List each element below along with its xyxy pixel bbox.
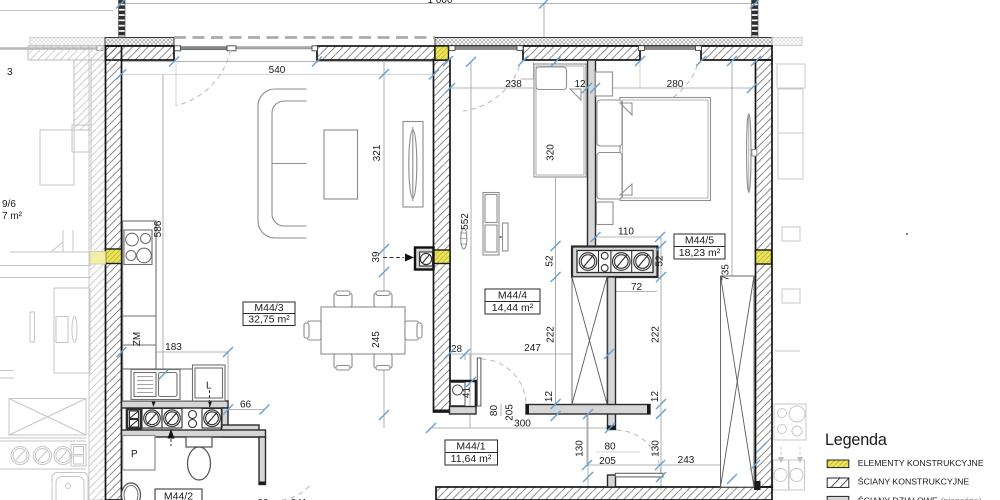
svg-text:222: 222 xyxy=(546,326,557,343)
svg-text:ZM: ZM xyxy=(132,332,143,346)
svg-text:1 000: 1 000 xyxy=(427,0,452,6)
svg-text:300: 300 xyxy=(514,419,531,430)
svg-text:M44/3: M44/3 xyxy=(254,302,283,314)
svg-text:222: 222 xyxy=(651,326,662,343)
svg-text:ELEMENTY KONSTRUKCYJNE: ELEMENTY KONSTRUKCYJNE xyxy=(858,458,984,468)
svg-text:110: 110 xyxy=(618,227,634,238)
svg-text:12: 12 xyxy=(544,391,555,403)
svg-text:11,64 m²: 11,64 m² xyxy=(451,453,492,465)
svg-text:M44/1: M44/1 xyxy=(456,441,485,453)
svg-text:14,44 m²: 14,44 m² xyxy=(492,302,534,314)
svg-text:183: 183 xyxy=(165,342,182,353)
svg-text:32,75 m²: 32,75 m² xyxy=(248,314,290,326)
svg-text:320: 320 xyxy=(546,144,557,161)
svg-text:130: 130 xyxy=(651,440,662,457)
svg-text:280: 280 xyxy=(667,79,684,90)
svg-text:130: 130 xyxy=(575,440,586,457)
svg-text:238: 238 xyxy=(505,79,522,90)
svg-text:66: 66 xyxy=(240,400,252,411)
svg-text:Legenda: Legenda xyxy=(825,431,887,449)
svg-text:3: 3 xyxy=(7,67,13,78)
svg-text:9/6: 9/6 xyxy=(2,199,16,210)
svg-text:41: 41 xyxy=(462,387,473,399)
svg-text:7 m²: 7 m² xyxy=(2,211,23,222)
svg-text:P: P xyxy=(131,449,138,460)
svg-text:M44/4: M44/4 xyxy=(498,290,527,302)
svg-text:552: 552 xyxy=(460,213,471,230)
svg-text:12: 12 xyxy=(650,391,661,403)
svg-text:245: 245 xyxy=(371,331,382,348)
svg-text:205: 205 xyxy=(599,456,616,467)
svg-text:205: 205 xyxy=(505,404,516,421)
svg-text:ŚCIANY KONSTRUKCYJNE: ŚCIANY KONSTRUKCYJNE xyxy=(858,476,970,487)
svg-text:80: 80 xyxy=(489,405,500,417)
svg-text:586: 586 xyxy=(153,220,164,237)
svg-text:M44/5: M44/5 xyxy=(685,235,714,247)
svg-text:12: 12 xyxy=(574,79,586,90)
svg-text:247: 247 xyxy=(524,343,541,354)
svg-text:321: 321 xyxy=(372,144,383,161)
svg-text:540: 540 xyxy=(269,65,286,76)
svg-text:L: L xyxy=(206,381,212,392)
svg-text:M44/2: M44/2 xyxy=(164,491,193,500)
svg-text:735: 735 xyxy=(721,264,732,281)
svg-text:80: 80 xyxy=(604,442,616,453)
svg-text:72: 72 xyxy=(631,282,643,293)
svg-text:243: 243 xyxy=(678,455,695,466)
svg-text:18,23 m²: 18,23 m² xyxy=(679,247,721,259)
svg-text:ŚCIANY DZIAŁOWE (nienośne): ŚCIANY DZIAŁOWE (nienośne) xyxy=(858,495,982,500)
svg-text:52: 52 xyxy=(545,255,556,267)
svg-text:52: 52 xyxy=(655,255,666,267)
